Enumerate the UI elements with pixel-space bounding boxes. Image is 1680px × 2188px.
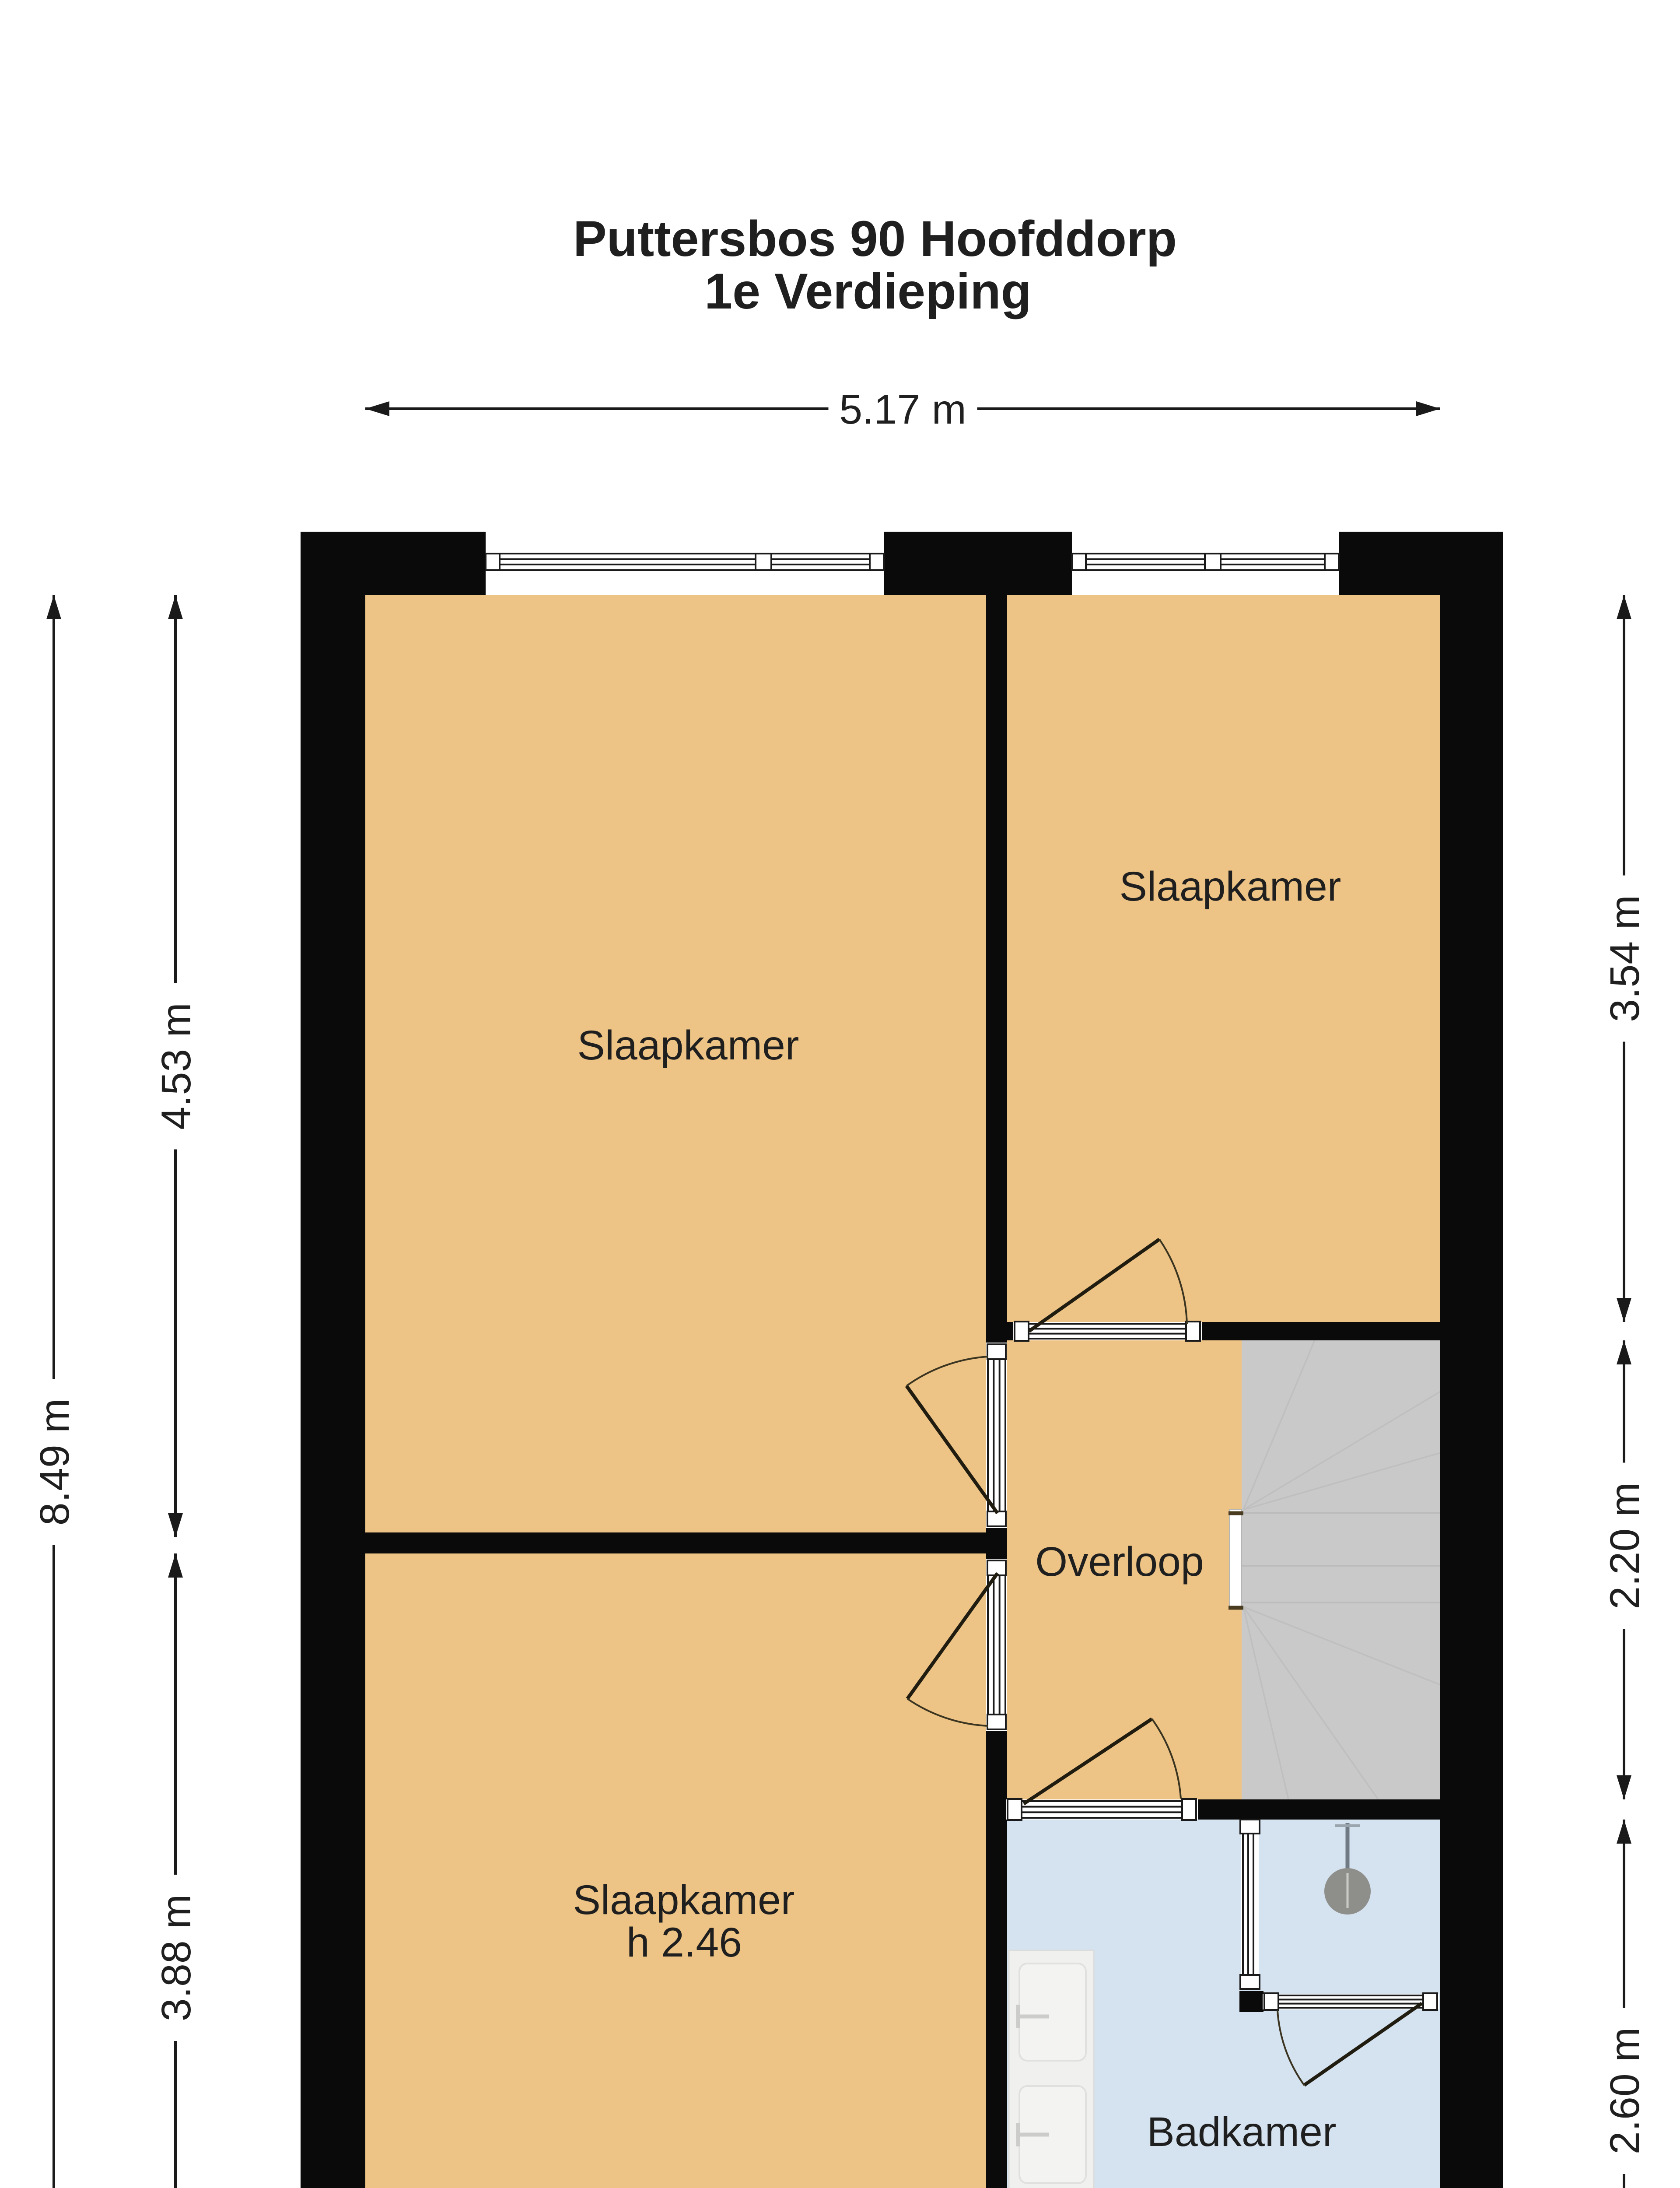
svg-text:Overloop: Overloop <box>1035 1539 1204 1585</box>
svg-text:5.17 m: 5.17 m <box>839 386 966 433</box>
svg-text:Slaapkamer: Slaapkamer <box>573 1877 795 1923</box>
svg-text:Slaapkamer: Slaapkamer <box>1120 863 1341 910</box>
svg-text:h 2.46: h 2.46 <box>626 1919 742 1966</box>
svg-text:1e Verdieping: 1e Verdieping <box>704 263 1032 319</box>
svg-text:Slaapkamer: Slaapkamer <box>577 1022 799 1069</box>
svg-text:3.54 m: 3.54 m <box>1602 895 1648 1022</box>
svg-text:Puttersbos 90 Hoofddorp: Puttersbos 90 Hoofddorp <box>573 211 1177 267</box>
svg-text:2.60 m: 2.60 m <box>1602 2027 1648 2154</box>
svg-text:3.88 m: 3.88 m <box>153 1894 199 2021</box>
svg-text:4.53 m: 4.53 m <box>153 1003 199 1129</box>
svg-text:2.20 m: 2.20 m <box>1602 1482 1648 1609</box>
svg-text:Badkamer: Badkamer <box>1147 2109 1337 2155</box>
svg-text:8.49 m: 8.49 m <box>31 1399 78 1525</box>
